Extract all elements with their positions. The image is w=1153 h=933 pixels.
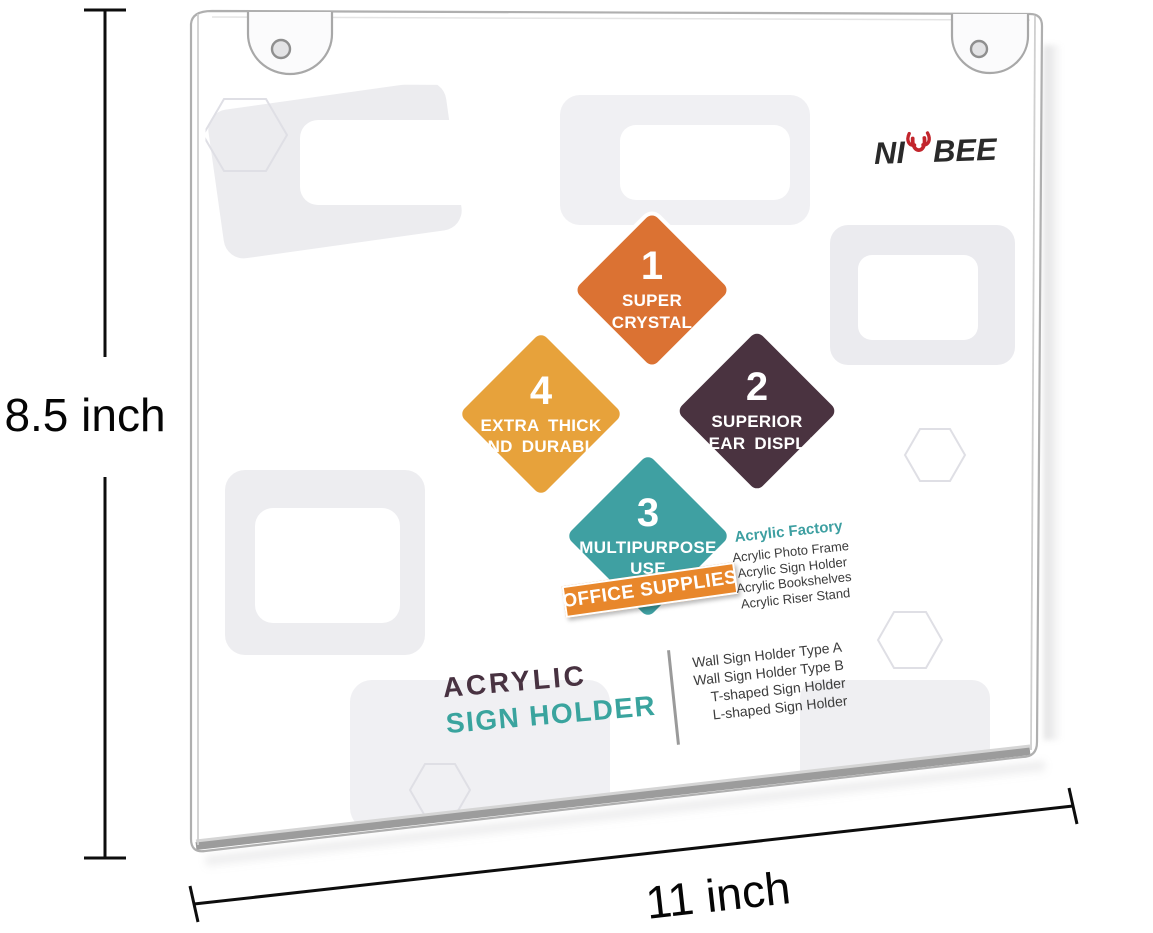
feature-2-label-line1: SUPERIOR (711, 412, 802, 433)
screw-hole-right (971, 41, 987, 57)
feature-3-number: 3 (637, 493, 659, 533)
panel-shadow-right (1044, 45, 1062, 740)
screw-hole-left (272, 40, 290, 58)
hanging-tab-left (248, 12, 332, 74)
brand-prefix: NI (873, 135, 905, 172)
width-dimension-label: 11 inch (606, 860, 830, 930)
feature-3-label-line1: MULTIPURPOSE (579, 537, 716, 558)
bull-icon (903, 130, 934, 167)
hanging-tab-right (952, 14, 1028, 73)
brand-suffix: BEE (932, 132, 997, 170)
feature-1-number: 1 (641, 247, 663, 287)
height-dimension-label: 8.5 inch (0, 392, 170, 438)
feature-1-label-line1: SUPER (622, 291, 682, 312)
factory-list: Acrylic Factory Acrylic Photo Frame Acry… (726, 517, 858, 613)
top-inner-edge (212, 17, 1030, 20)
feature-4-number: 4 (530, 371, 552, 411)
feature-2-number: 2 (746, 368, 768, 408)
brand-logo: NI BEE (873, 123, 1045, 179)
feature-4-label-line1: EXTRA THICK (481, 415, 602, 436)
